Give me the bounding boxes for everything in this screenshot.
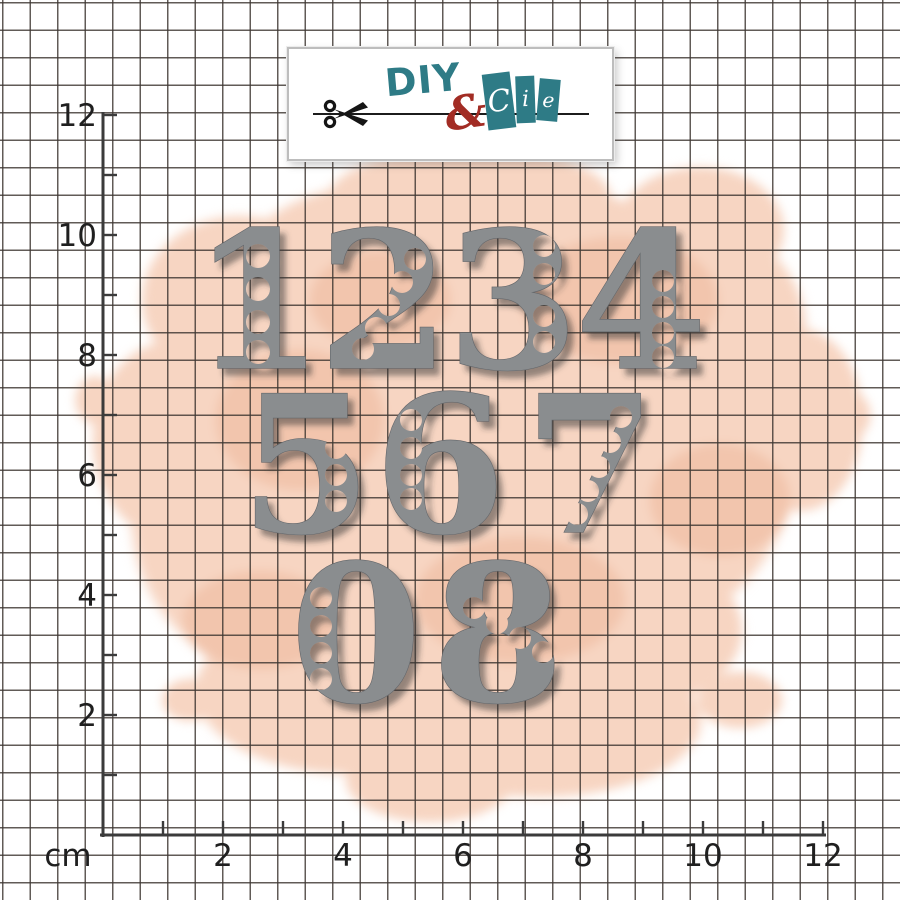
cie-letter-block: C: [482, 72, 517, 131]
brand-name-cie: C i e: [485, 73, 559, 129]
brand-ampersand: &: [442, 86, 490, 137]
cie-letter: i: [522, 87, 530, 112]
cie-letter-block: i: [515, 76, 536, 124]
cie-letter: e: [542, 88, 556, 113]
cie-letter: C: [485, 82, 512, 120]
brand-logo: DIY & C i e: [287, 47, 614, 161]
product-image: 2244668810101212cm 123456708 DIY & C i e: [0, 0, 900, 900]
scissors-icon: [323, 95, 375, 133]
cie-letter-block: e: [536, 78, 561, 122]
